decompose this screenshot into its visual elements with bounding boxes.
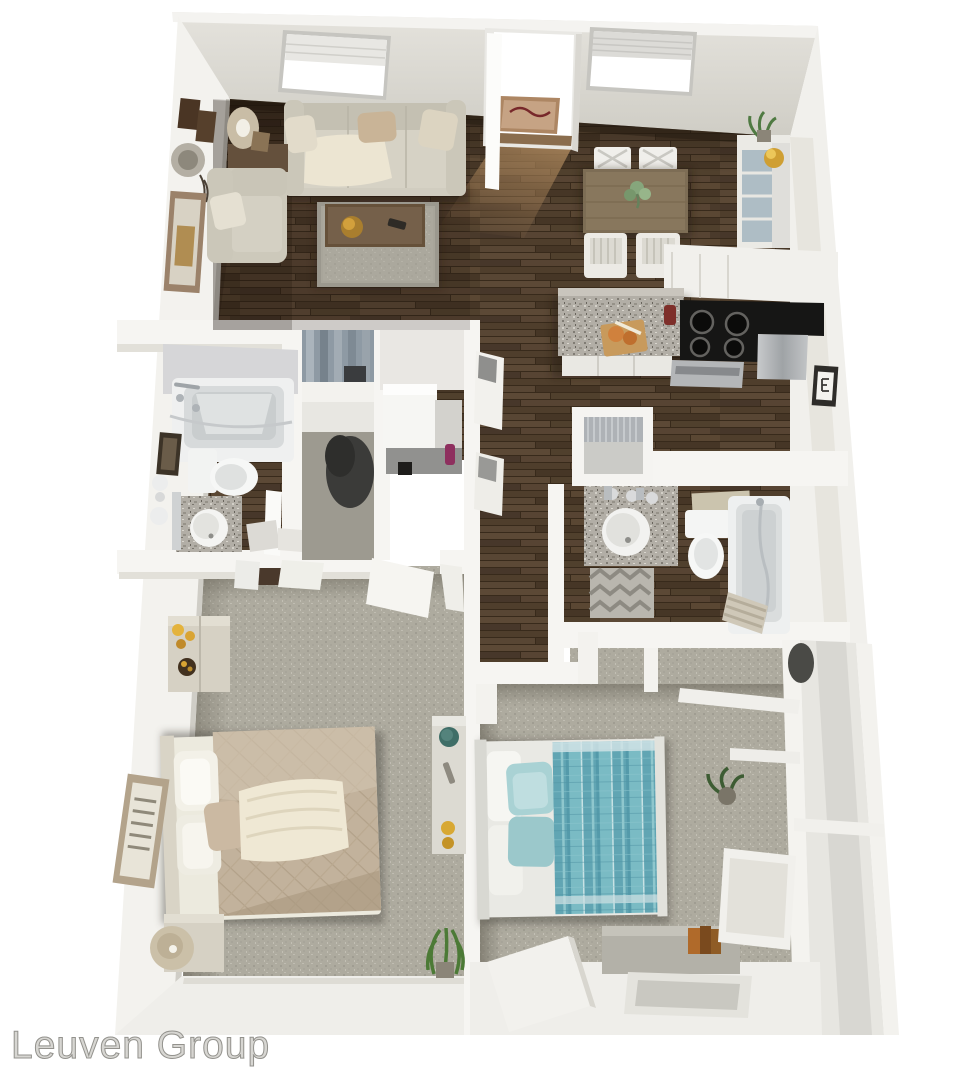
svg-text:Leuven Group: Leuven Group (11, 1024, 270, 1067)
